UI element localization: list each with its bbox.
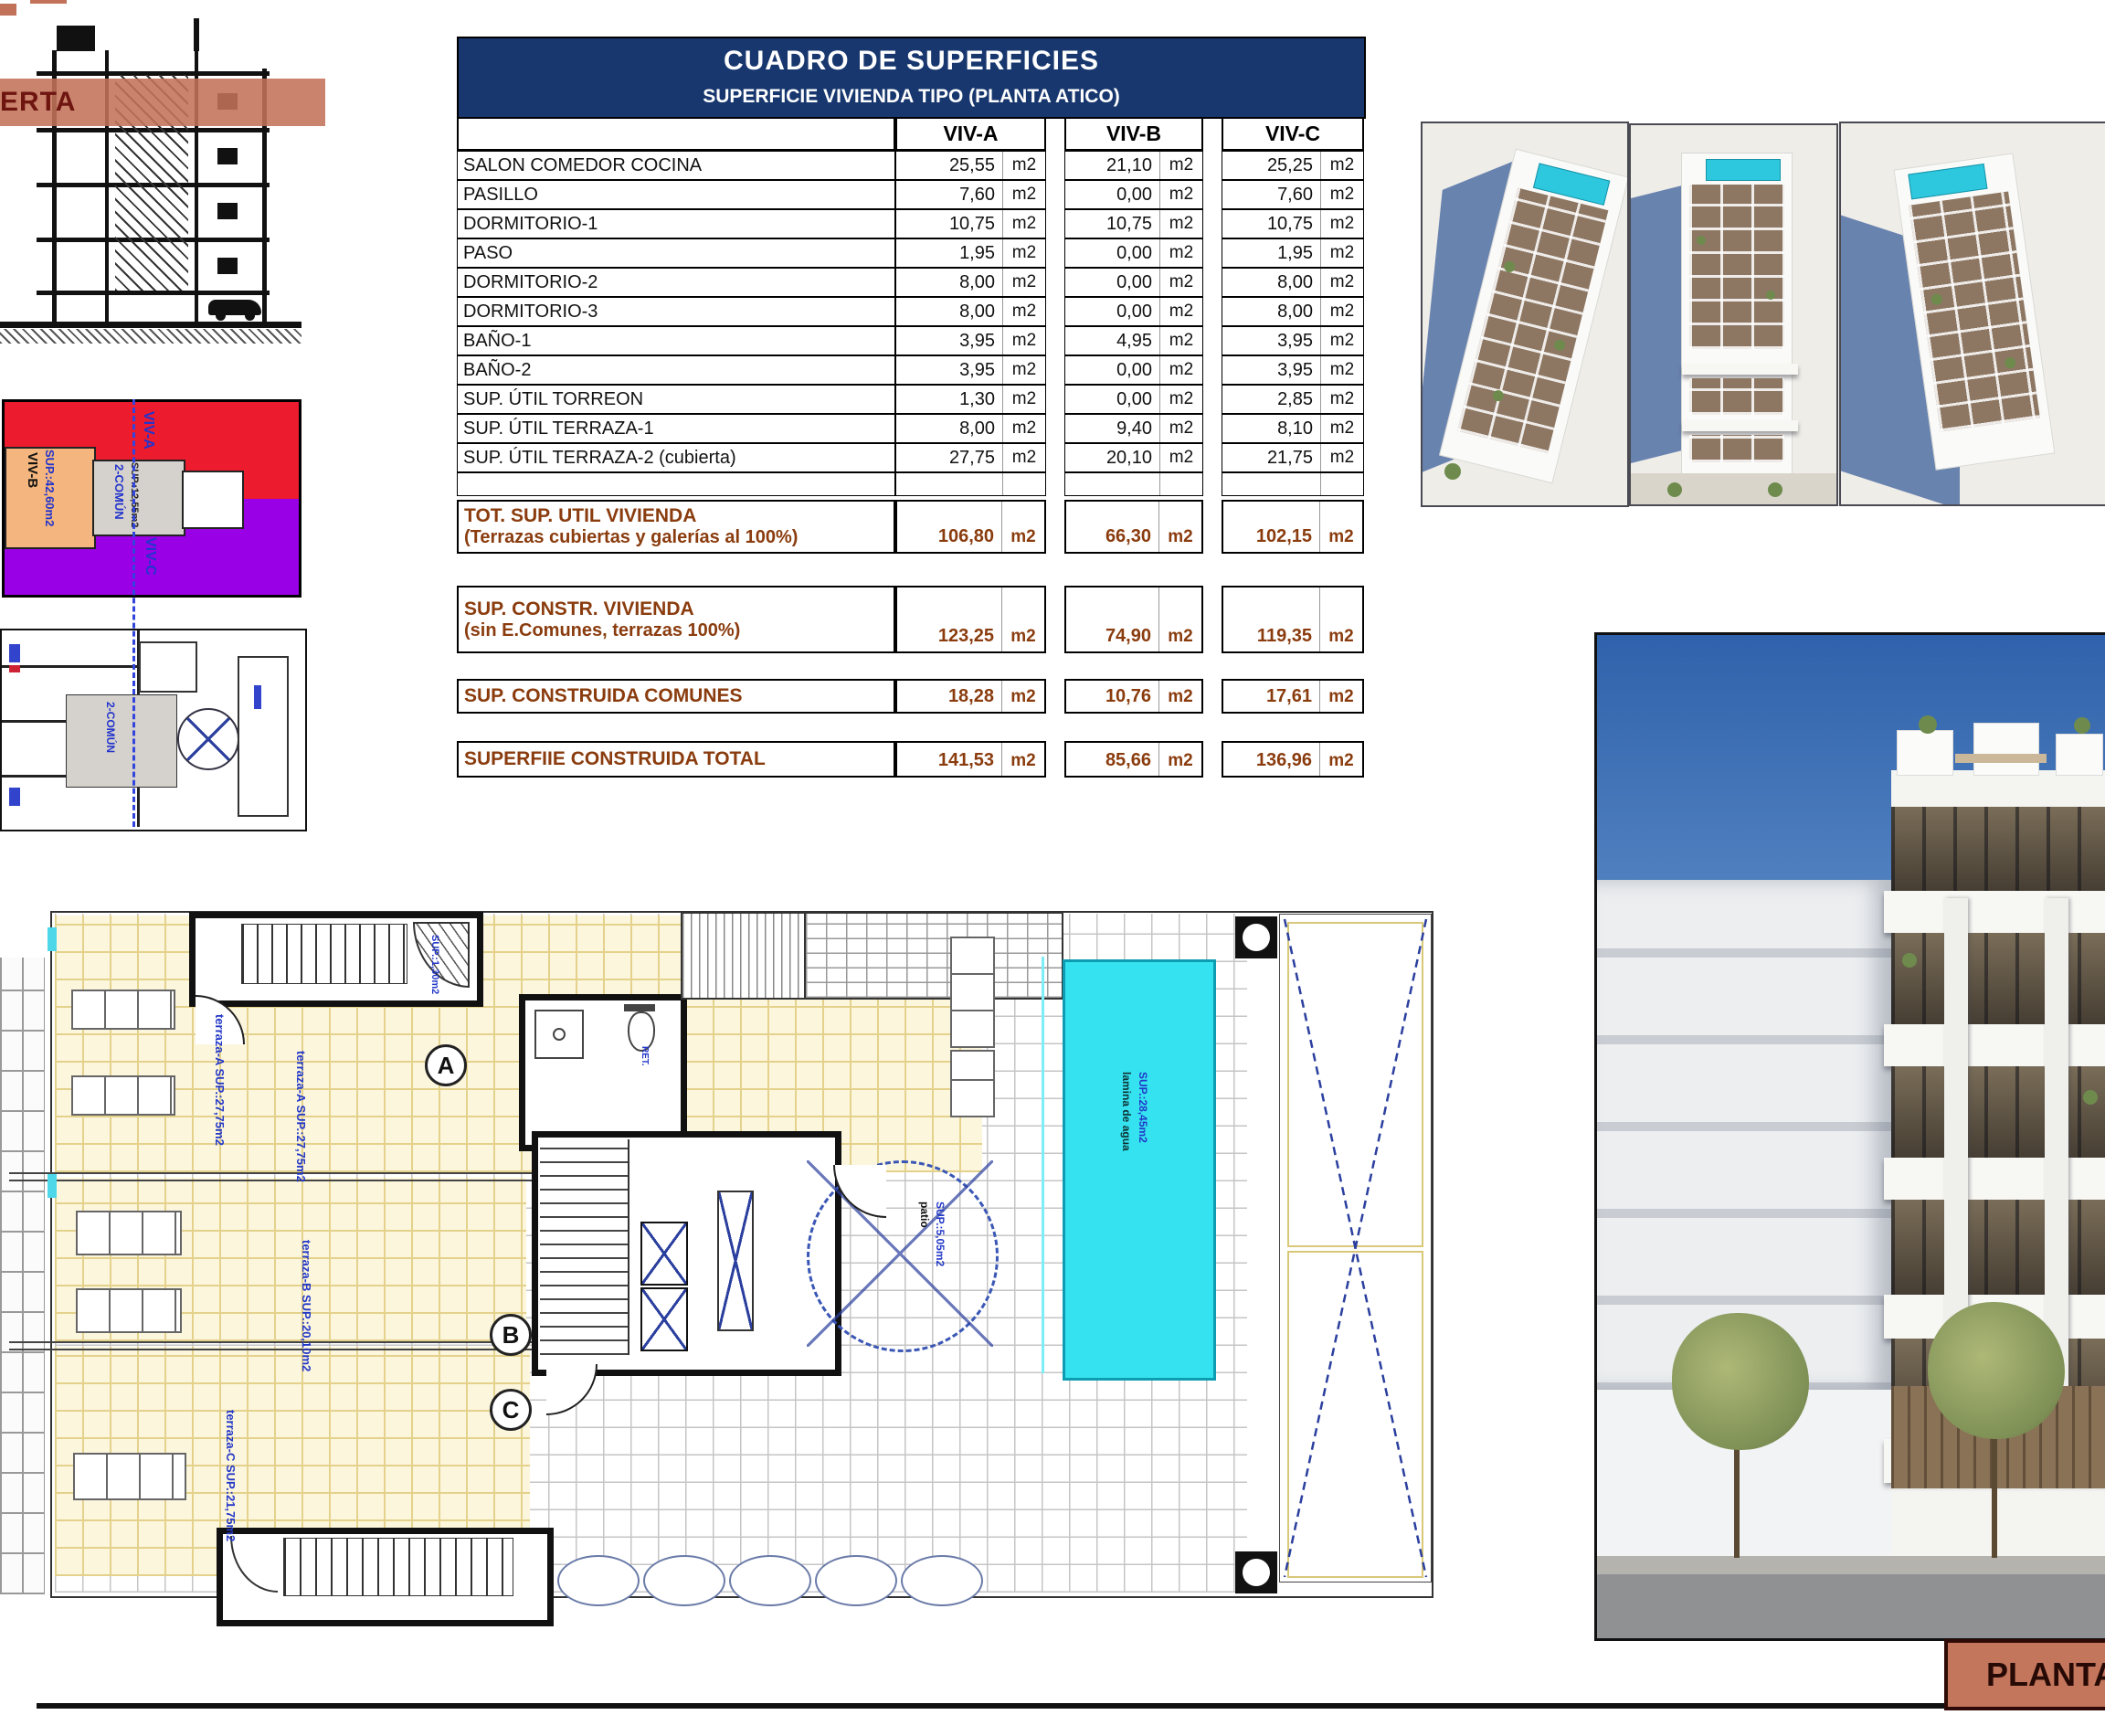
table-row: SUP. ÚTIL TERRAZA-2 (cubierta)27,75m220,… — [457, 443, 1366, 472]
planter-circle — [901, 1555, 983, 1606]
zone-label-viv-a: VIV-A — [140, 411, 156, 450]
row-value-a: 1,30m2 — [895, 385, 1046, 414]
neighbor-roof-strip — [0, 958, 45, 1594]
core-stairs — [540, 1139, 629, 1355]
patio-sup-label: SUP.:5,05m2 — [934, 1201, 947, 1266]
table-row: SUP. ÚTIL TORREON1,30m20,00m22,85m2 — [457, 385, 1366, 414]
bathroom-ret — [519, 994, 687, 1151]
x-braced-strip — [1279, 914, 1432, 1583]
row-value-a: 3,95m2 — [895, 355, 1046, 385]
row-value-c: 25,25m2 — [1222, 151, 1364, 180]
summary-label: TOT. SUP. UTIL VIVIENDA(Terrazas cubiert… — [457, 500, 895, 554]
row-value-a: 25,55m2 — [895, 151, 1046, 180]
table-header: CUADRO DE SUPERFICIES SUPERFICIE VIVIEND… — [457, 37, 1366, 119]
schematic-patio-shaft — [238, 656, 289, 817]
row-label: SALON COMEDOR COCINA — [457, 151, 895, 180]
row-value-b: 4,95m2 — [1064, 326, 1203, 355]
torreon-stair — [413, 922, 470, 988]
row-value-a: 8,00m2 — [895, 297, 1046, 326]
summary-value-b: 74,90m2 — [1064, 586, 1203, 653]
table-row: DORMITORIO-28,00m20,00m28,00m2 — [457, 268, 1366, 297]
row-value-c: 8,00m2 — [1222, 268, 1364, 297]
footer-rule — [37, 1703, 1948, 1709]
row-value-c: 3,95m2 — [1222, 326, 1364, 355]
row-value-b: 10,75m2 — [1064, 209, 1203, 238]
schematic-comun-label: 2-COMÚN — [104, 702, 117, 753]
column-header-viv-c: VIV-C — [1222, 119, 1364, 151]
zoning-diagram: VIV-A VIV-C VIV-B SUP.:42,60m2 2-COMÚN S… — [2, 399, 301, 598]
summary-value-c: 17,61m2 — [1222, 679, 1364, 714]
row-label: SUP. ÚTIL TORREON — [457, 385, 895, 414]
schematic-plan-diagram: 2-COMÚN — [0, 629, 307, 831]
row-value-c: 8,10m2 — [1222, 414, 1364, 443]
sun-lounger — [71, 990, 175, 1030]
table-spacer-row — [457, 472, 1366, 496]
summary-row: SUP. CONSTR. VIVIENDA(sin E.Comunes, ter… — [457, 586, 1366, 653]
sheet-title-plate: PLANTA ATICO — [1944, 1639, 2105, 1710]
ground-line — [0, 322, 301, 328]
column-header-empty — [457, 119, 895, 151]
table-row: DORMITORIO-38,00m20,00m28,00m2 — [457, 297, 1366, 326]
summary-value-a: 141,53m2 — [895, 741, 1046, 778]
summary-value-b: 85,66m2 — [1064, 741, 1203, 778]
row-value-b: 0,00m2 — [1064, 297, 1203, 326]
table-column-headers: VIV-A VIV-B VIV-C — [457, 119, 1366, 151]
summary-value-c: 136,96m2 — [1222, 741, 1364, 778]
terraza-b-label: terraza-B SUP.:20,10m2 — [300, 1240, 313, 1371]
building-section-drawing — [0, 18, 347, 365]
summary-value-a: 106,80m2 — [895, 500, 1046, 554]
row-value-b: 0,00m2 — [1064, 238, 1203, 268]
apartment-marker-c: C — [490, 1389, 532, 1431]
elevator-cross-icon — [640, 1222, 688, 1286]
row-label: DORMITORIO-2 — [457, 268, 895, 297]
dimension-tick — [48, 1174, 57, 1198]
summary-label: SUP. CONSTRUIDA COMUNES — [457, 679, 895, 714]
tree-icon — [1928, 1302, 2065, 1439]
terraza-a-label-2: terraza-A SUP.:27,75m2 — [294, 1051, 308, 1182]
row-label: DORMITORIO-1 — [457, 209, 895, 238]
row-value-a: 27,75m2 — [895, 443, 1046, 472]
main-building — [1891, 770, 2105, 1569]
row-value-c: 10,75m2 — [1222, 209, 1364, 238]
row-value-b: 0,00m2 — [1064, 385, 1203, 414]
elevator-cross-icon — [182, 471, 244, 529]
plan-sheet-page: ERTA CUADRO DE SUPERFICIES SUPERFICIE VI… — [0, 0, 2105, 1736]
summary-value-a: 18,28m2 — [895, 679, 1046, 714]
table-row: SALON COMEDOR COCINA25,55m221,10m225,25m… — [457, 151, 1366, 180]
row-value-a: 7,60m2 — [895, 180, 1046, 209]
row-value-a: 10,75m2 — [895, 209, 1046, 238]
planter-circle — [729, 1555, 811, 1606]
summary-row: SUP. CONSTRUIDA COMUNES18,28m210,76m217,… — [457, 679, 1366, 714]
table-title: CUADRO DE SUPERFICIES — [459, 46, 1364, 77]
tree-icon — [1672, 1313, 1809, 1450]
row-value-b: 9,40m2 — [1064, 414, 1203, 443]
sheet-title: PLANTA ATICO — [1986, 1656, 2105, 1694]
table-subtitle: SUPERFICIE VIVIENDA TIPO (PLANTA ATICO) — [459, 86, 1364, 108]
table-row: DORMITORIO-110,75m210,75m210,75m2 — [457, 209, 1366, 238]
torreon-sup-label: SUP.:1,30m2 — [429, 935, 440, 994]
patio-label: patio — [918, 1201, 931, 1228]
sun-lounger — [73, 1453, 186, 1500]
table-summary: TOT. SUP. UTIL VIVIENDA(Terrazas cubiert… — [457, 500, 1366, 778]
apartment-marker-a: A — [425, 1044, 467, 1086]
row-value-a: 8,00m2 — [895, 268, 1046, 297]
row-value-a: 1,95m2 — [895, 238, 1046, 268]
sun-lounger — [71, 1075, 175, 1116]
pool-label: lamina de agua — [1120, 1072, 1133, 1151]
summary-value-b: 66,30m2 — [1064, 500, 1203, 554]
row-value-c: 1,95m2 — [1222, 238, 1364, 268]
cubierta-band-label: ERTA — [0, 87, 76, 118]
schematic-elevator-icon — [177, 708, 239, 770]
schematic-top-room — [139, 641, 197, 693]
table-row: BAÑO-23,95m20,00m23,95m2 — [457, 355, 1366, 385]
row-value-c: 8,00m2 — [1222, 297, 1364, 326]
zone-label-viv-b-sup: SUP.:42,60m2 — [43, 450, 57, 526]
surface-table: CUADRO DE SUPERFICIES SUPERFICIE VIVIEND… — [457, 37, 1366, 778]
roof-grid-hatch — [804, 912, 1063, 1000]
salmon-corner-mark — [0, 4, 16, 16]
summary-label: SUPERFIIE CONSTRUIDA TOTAL — [457, 741, 895, 778]
summary-value-a: 123,25m2 — [895, 586, 1046, 653]
row-value-b: 0,00m2 — [1064, 268, 1203, 297]
row-value-c: 3,95m2 — [1222, 355, 1364, 385]
planter-circle — [815, 1555, 897, 1606]
table-row: BAÑO-13,95m24,95m23,95m2 — [457, 326, 1366, 355]
row-value-b: 20,10m2 — [1064, 443, 1203, 472]
table-row: SUP. ÚTIL TERRAZA-18,00m29,40m28,10m2 — [457, 414, 1366, 443]
row-value-b: 0,00m2 — [1064, 180, 1203, 209]
dimension-tick — [48, 927, 57, 951]
row-value-a: 3,95m2 — [895, 326, 1046, 355]
row-value-c: 2,85m2 — [1222, 385, 1364, 414]
table-row: PASILLO7,60m20,00m27,60m2 — [457, 180, 1366, 209]
row-value-c: 7,60m2 — [1222, 180, 1364, 209]
vent-icon — [1235, 1551, 1277, 1593]
summary-row: TOT. SUP. UTIL VIVIENDA(Terrazas cubiert… — [457, 500, 1366, 553]
row-value-b: 21,10m2 — [1064, 151, 1203, 180]
rooftop-pool: lamina de agua SUP.:28,45m2 — [1063, 959, 1216, 1381]
chimney — [194, 18, 199, 51]
cubierta-band: ERTA — [0, 79, 325, 126]
aerial-render-1 — [1421, 122, 1629, 507]
terraza-c-label: terraza-C SUP.:21,75m2 — [224, 1410, 238, 1541]
street-facade-render — [1594, 632, 2105, 1641]
salmon-top-strip — [30, 0, 67, 4]
sun-lounger — [950, 1050, 995, 1117]
pool-sup-label: SUP.:28,45m2 — [1137, 1072, 1149, 1143]
terraza-a-label: terraza-A SUP.:27,75m2 — [213, 1014, 227, 1146]
row-label: SUP. ÚTIL TERRAZA-2 (cubierta) — [457, 443, 895, 472]
row-value-a: 8,00m2 — [895, 414, 1046, 443]
sun-lounger — [950, 937, 995, 1048]
row-label: BAÑO-1 — [457, 326, 895, 355]
row-value-c: 21,75m2 — [1222, 443, 1364, 472]
axis-dashed-line — [132, 399, 135, 827]
elevator-cross-icon — [640, 1287, 688, 1351]
row-label: DORMITORIO-3 — [457, 297, 895, 326]
vent-icon — [1235, 916, 1277, 958]
planter-circle — [643, 1555, 725, 1606]
row-value-b: 0,00m2 — [1064, 355, 1203, 385]
aerial-render-2 — [1629, 123, 1838, 506]
atico-floor-plan: SUP.:1,30m2 RET. patio SUP.:5,05m2 A B C — [0, 900, 1444, 1608]
summary-row: SUPERFIIE CONSTRUIDA TOTAL141,53m285,66m… — [457, 741, 1366, 778]
row-label: BAÑO-2 — [457, 355, 895, 385]
zone-label-comun: 2-COMÚN — [112, 464, 126, 520]
bottom-stairwell — [217, 1528, 554, 1626]
schematic-comun-area — [66, 694, 177, 788]
stair-elevator-core — [532, 1131, 841, 1376]
zone-label-viv-b: VIV-B — [25, 452, 40, 488]
column-header-viv-b: VIV-B — [1064, 119, 1203, 151]
planter-circle — [557, 1555, 640, 1606]
sun-lounger — [76, 1211, 182, 1255]
roof-stripe-hatch — [681, 912, 808, 1000]
rooftop-torreon — [57, 26, 95, 51]
summary-value-c: 102,15m2 — [1222, 500, 1364, 554]
column-header-viv-a: VIV-A — [895, 119, 1046, 151]
aerial-render-3 — [1839, 122, 2105, 506]
zone-label-viv-c: VIV-C — [142, 537, 158, 576]
summary-label: SUP. CONSTR. VIVIENDA(sin E.Comunes, ter… — [457, 586, 895, 653]
summary-value-c: 119,35m2 — [1222, 586, 1364, 653]
apartment-marker-b: B — [490, 1314, 532, 1356]
row-label: PASILLO — [457, 180, 895, 209]
sun-lounger — [76, 1288, 182, 1333]
summary-value-b: 10,76m2 — [1064, 679, 1203, 714]
row-label: SUP. ÚTIL TERRAZA-1 — [457, 414, 895, 443]
row-label: PASO — [457, 238, 895, 268]
table-row: PASO1,95m20,00m21,95m2 — [457, 238, 1366, 268]
table-body: SALON COMEDOR COCINA25,55m221,10m225,25m… — [457, 151, 1366, 472]
ret-label: RET. — [640, 1046, 650, 1066]
